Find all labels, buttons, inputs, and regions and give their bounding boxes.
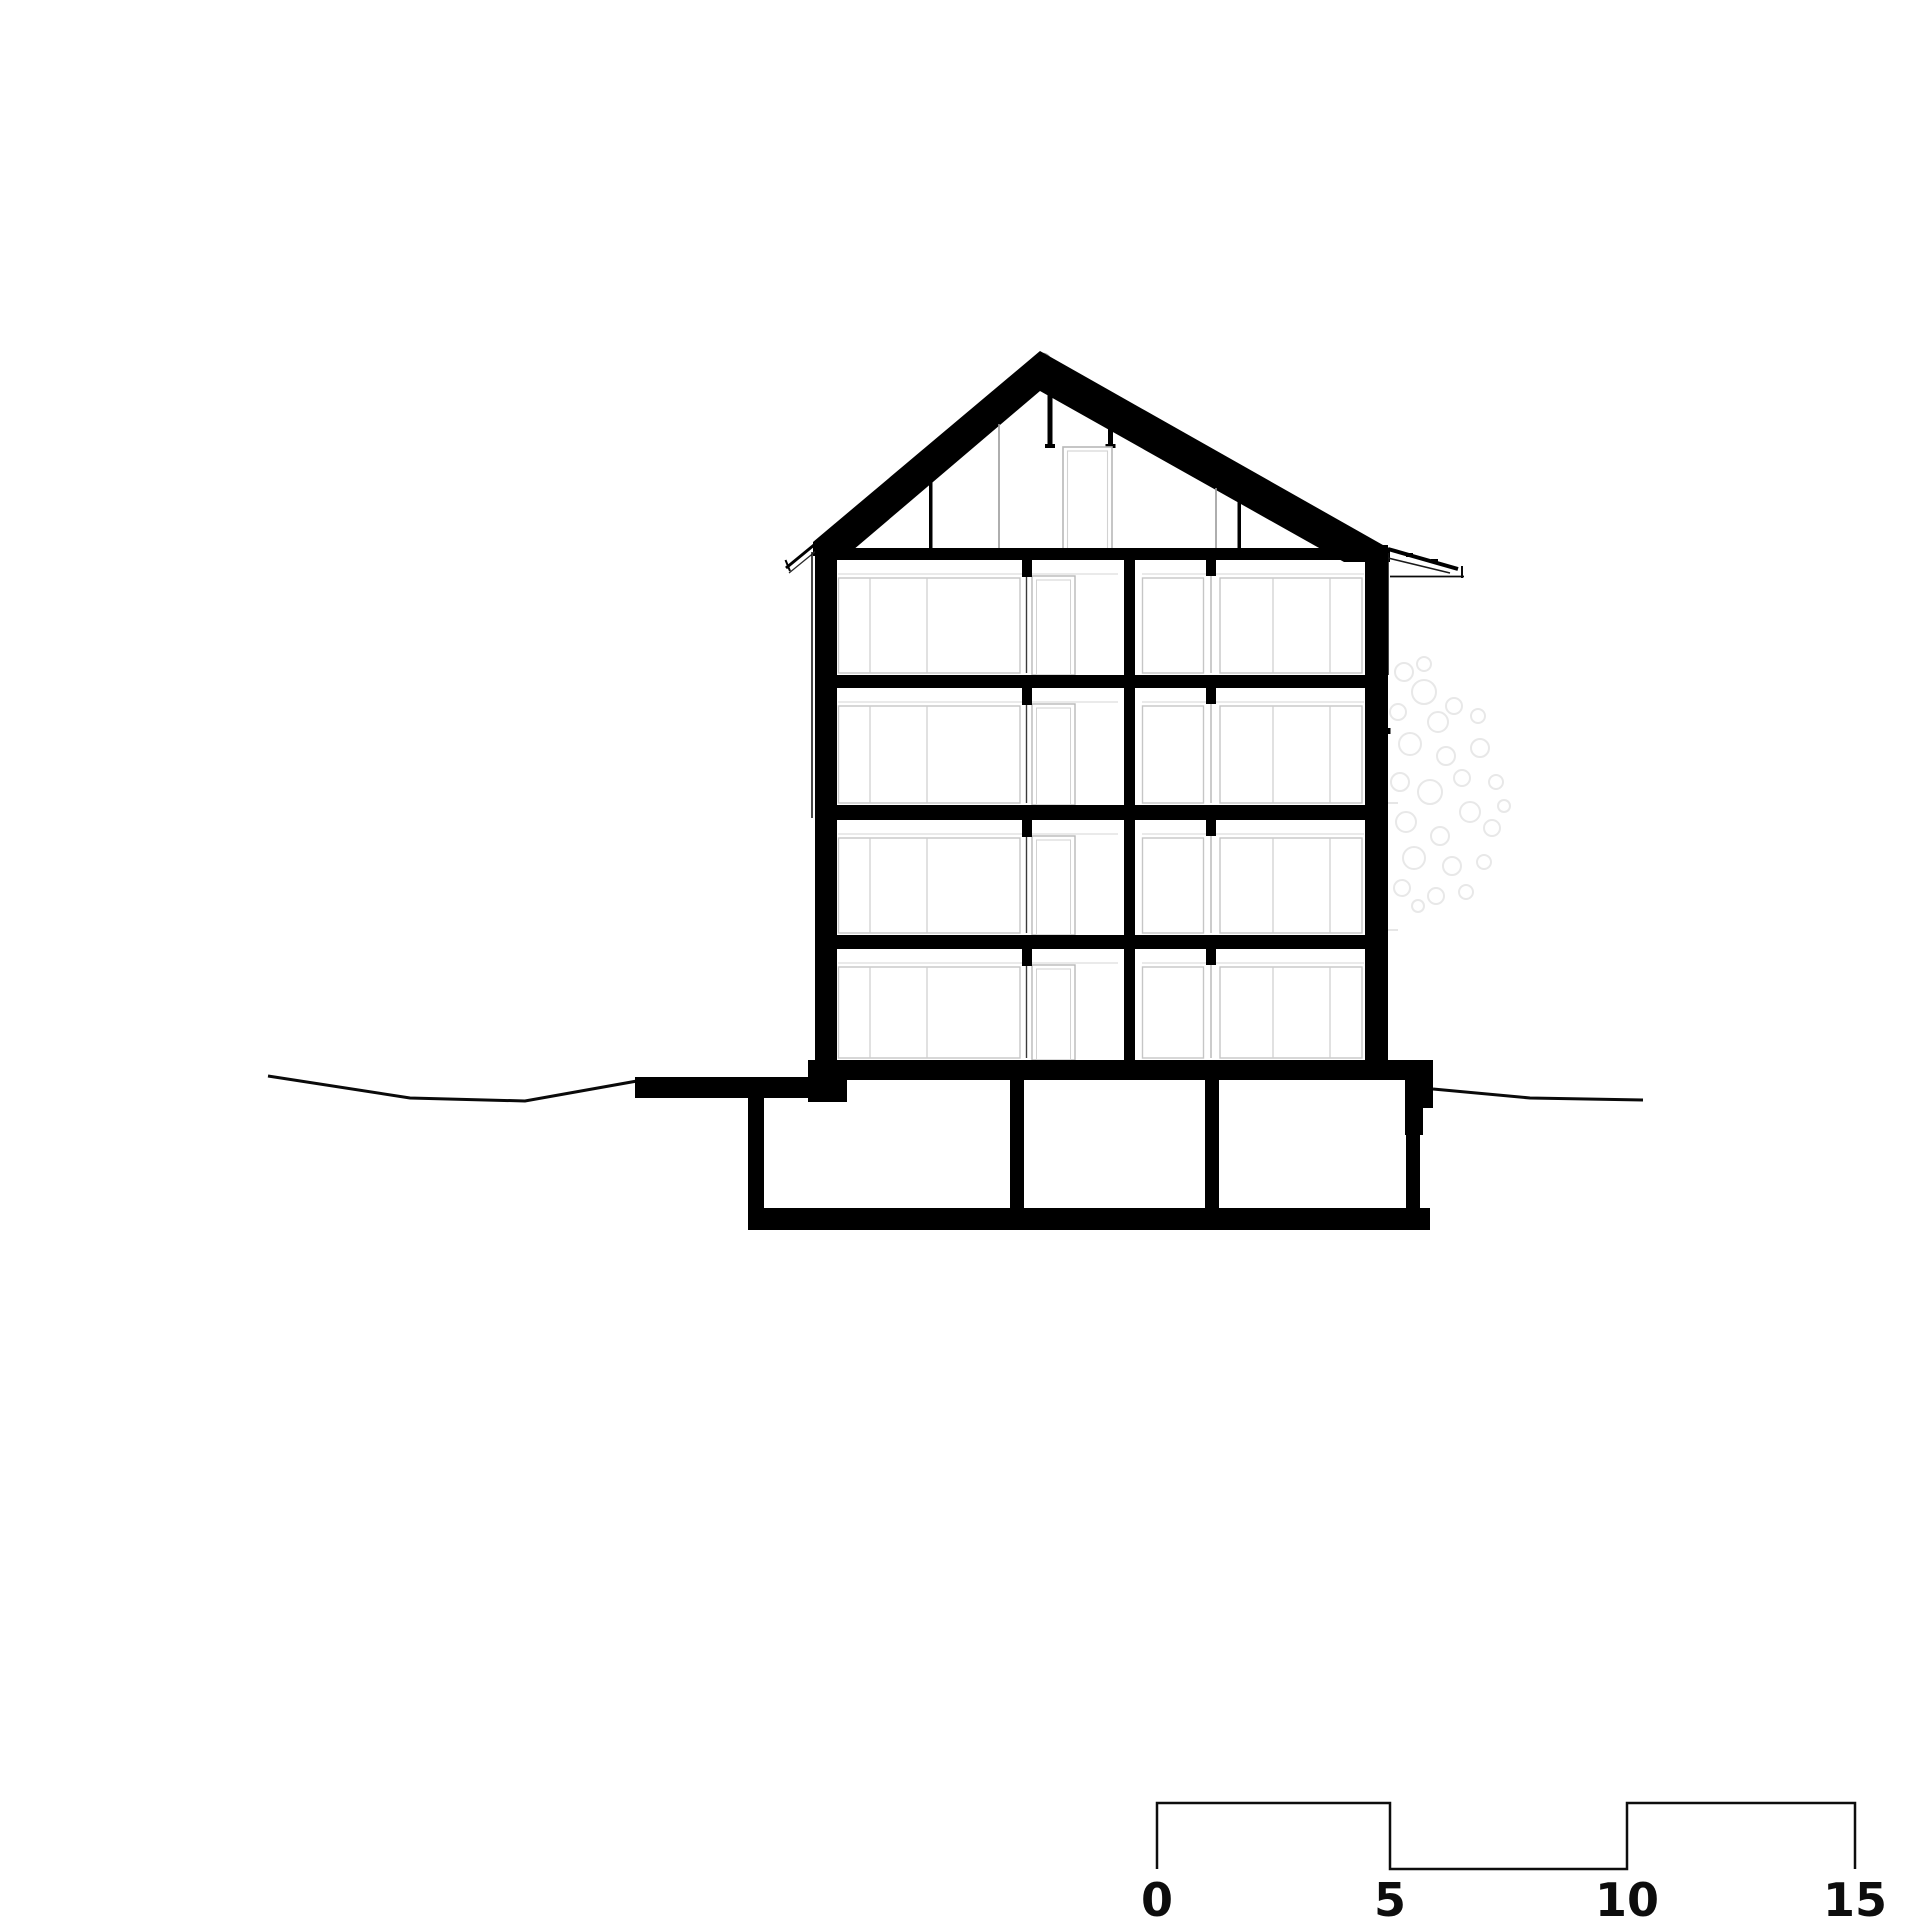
basement-floor-slab	[748, 1208, 1430, 1230]
scale-label-5: 5	[1374, 1873, 1406, 1920]
entrance-terrace-slab	[635, 1077, 847, 1098]
floor2-elevation-lines	[838, 834, 1364, 935]
ground-line-left	[268, 1076, 637, 1101]
exterior-wall-right	[1365, 545, 1388, 1080]
scale-label-10: 10	[1595, 1873, 1659, 1920]
basement-wall-mid-left	[1010, 1080, 1024, 1210]
eave-detail-right	[1388, 549, 1464, 578]
slab-level-3	[815, 675, 1388, 688]
foundation-step-left	[808, 1095, 847, 1102]
foundation-step-right-1	[1405, 1080, 1433, 1108]
roof	[786, 351, 1465, 578]
attic-strut-right	[1238, 495, 1242, 550]
floor3-elevation-lines	[838, 702, 1364, 805]
scale-label-0: 0	[1141, 1873, 1173, 1920]
section-drawing-sheet: 0 5 10 15	[0, 0, 1920, 1920]
ground-line-right	[1433, 1089, 1643, 1100]
floor1-elevation-lines	[838, 963, 1364, 1060]
attic-floor-slab	[815, 548, 1388, 560]
floor4-elevation-lines	[838, 574, 1364, 675]
basement-and-foundation	[635, 1077, 1433, 1230]
exterior-wall-left	[815, 541, 837, 1080]
attic-hanger-post-right	[1108, 428, 1113, 446]
scale-bar: 0 5 10 15	[1141, 1803, 1887, 1920]
door-lintel-stubs	[1022, 559, 1216, 966]
attic-door-frame	[1063, 447, 1112, 550]
slab-level-1	[815, 935, 1388, 949]
background-tree-foliage	[1390, 657, 1510, 912]
attic-strut-left	[929, 481, 933, 550]
building-section-canvas: 0 5 10 15	[0, 0, 1920, 1920]
interior-wall-central	[1124, 548, 1135, 1080]
floor-slabs	[808, 548, 1433, 1080]
scale-label-15: 15	[1823, 1873, 1887, 1920]
ground-floor-slab	[808, 1060, 1433, 1080]
basement-wall-mid-right	[1205, 1080, 1219, 1210]
basement-wall-right	[1406, 1135, 1420, 1210]
attic-hanger-post-left	[1048, 388, 1053, 446]
scale-bar-line	[1157, 1803, 1855, 1869]
foundation-step-right-2	[1405, 1108, 1423, 1135]
slab-level-2	[815, 805, 1388, 820]
roof-slope-left	[813, 351, 1040, 556]
